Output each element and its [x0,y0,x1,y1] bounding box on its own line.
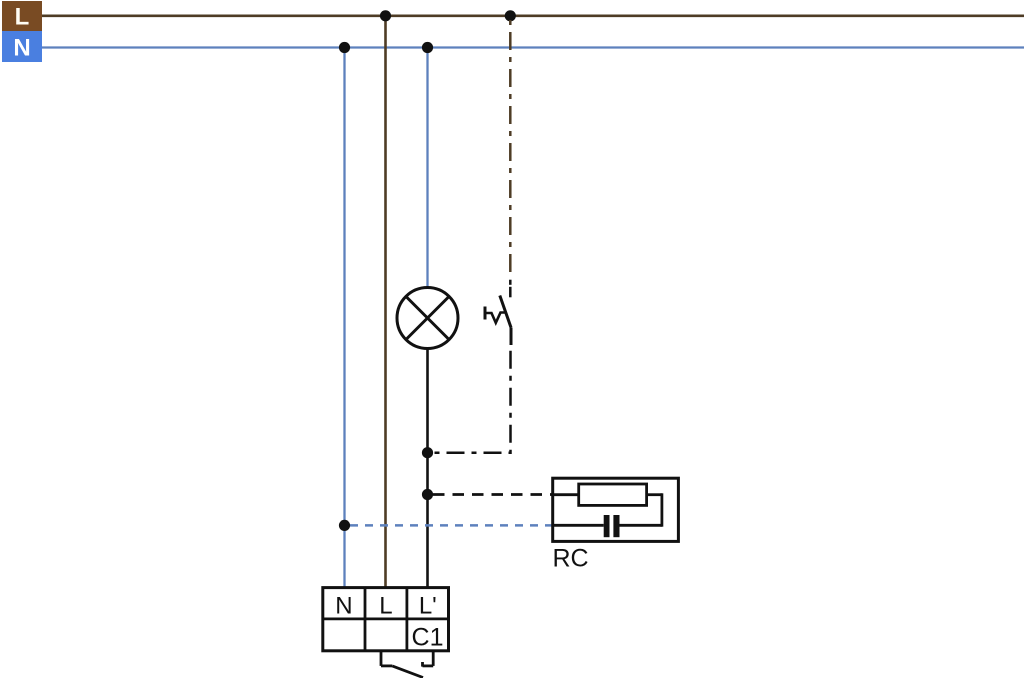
svg-text:L: L [15,4,30,31]
svg-text:RC: RC [553,545,589,573]
svg-text:N: N [13,35,30,62]
svg-text:N: N [335,593,352,620]
svg-text:C1: C1 [412,623,444,651]
svg-text:L': L' [419,593,437,620]
svg-text:L: L [379,593,392,620]
